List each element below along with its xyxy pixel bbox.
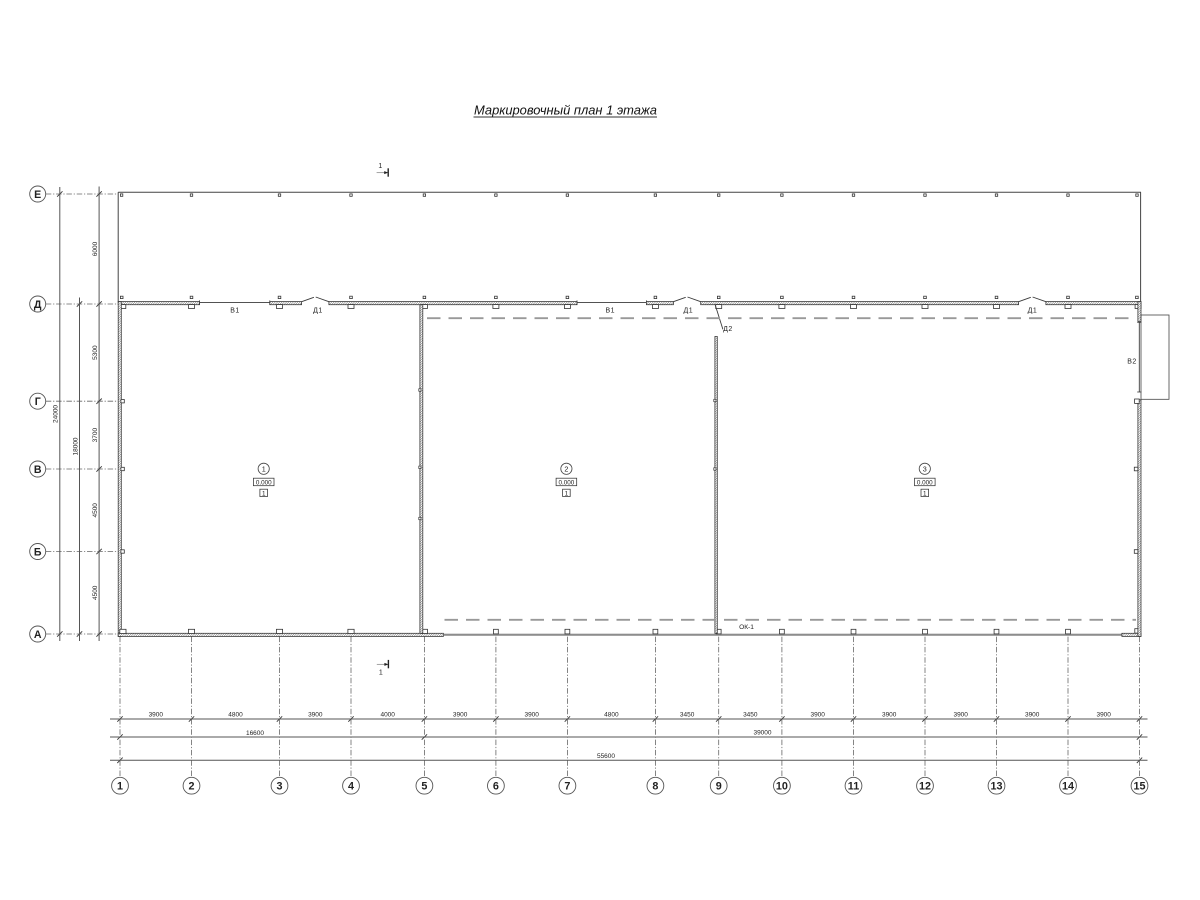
svg-text:1: 1: [565, 490, 569, 497]
svg-text:39000: 39000: [753, 730, 771, 737]
svg-text:Г: Г: [35, 396, 41, 408]
svg-text:11: 11: [848, 781, 859, 793]
svg-text:3450: 3450: [743, 712, 758, 719]
svg-text:13: 13: [990, 781, 1002, 793]
svg-text:18000: 18000: [73, 437, 80, 455]
svg-text:3900: 3900: [1025, 712, 1040, 719]
svg-text:16600: 16600: [246, 730, 264, 737]
svg-text:А: А: [34, 629, 42, 641]
svg-text:Б: Б: [34, 546, 42, 558]
svg-text:5300: 5300: [92, 345, 99, 360]
svg-text:55600: 55600: [597, 753, 615, 760]
svg-text:1: 1: [117, 781, 123, 793]
svg-text:10: 10: [776, 781, 788, 793]
svg-text:3900: 3900: [453, 712, 468, 719]
svg-text:24000: 24000: [53, 405, 60, 423]
svg-text:1: 1: [262, 464, 266, 473]
svg-text:3900: 3900: [810, 712, 825, 719]
svg-text:Д1: Д1: [313, 308, 323, 315]
svg-text:0.000: 0.000: [256, 479, 272, 486]
svg-text:Д1: Д1: [1028, 308, 1038, 315]
svg-text:Д1: Д1: [683, 308, 693, 315]
svg-text:2: 2: [564, 464, 568, 473]
svg-text:В1: В1: [230, 308, 240, 315]
svg-text:1: 1: [379, 670, 383, 677]
svg-text:Маркировочный план 1 этажа: Маркировочный план 1 этажа: [474, 103, 657, 118]
svg-text:1: 1: [923, 490, 927, 497]
svg-text:7: 7: [564, 781, 570, 793]
svg-text:1: 1: [262, 490, 266, 497]
svg-text:3900: 3900: [1096, 712, 1111, 719]
svg-text:3900: 3900: [308, 712, 323, 719]
svg-text:3900: 3900: [524, 712, 539, 719]
svg-text:8: 8: [652, 781, 658, 793]
svg-text:В: В: [34, 464, 42, 476]
svg-text:4500: 4500: [92, 503, 99, 518]
svg-text:3450: 3450: [680, 712, 695, 719]
svg-text:3: 3: [923, 464, 927, 473]
svg-text:4800: 4800: [228, 712, 243, 719]
svg-text:4: 4: [348, 781, 354, 793]
svg-text:ОК-1: ОК-1: [739, 624, 754, 631]
svg-text:В2: В2: [1127, 358, 1137, 365]
svg-text:Д2: Д2: [723, 326, 733, 333]
svg-text:В1: В1: [606, 308, 616, 315]
svg-text:15: 15: [1133, 781, 1145, 793]
svg-text:4000: 4000: [380, 712, 395, 719]
svg-text:0.000: 0.000: [559, 479, 575, 486]
svg-text:3900: 3900: [882, 712, 897, 719]
svg-text:5: 5: [421, 781, 427, 793]
svg-text:3900: 3900: [149, 712, 164, 719]
svg-text:6000: 6000: [92, 241, 99, 256]
svg-text:3: 3: [276, 781, 282, 793]
svg-text:3900: 3900: [953, 712, 968, 719]
svg-text:Е: Е: [34, 189, 41, 201]
svg-text:4800: 4800: [604, 712, 619, 719]
svg-text:14: 14: [1062, 781, 1074, 793]
svg-text:4500: 4500: [92, 585, 99, 600]
svg-text:2: 2: [188, 781, 194, 793]
svg-text:0.000: 0.000: [917, 479, 933, 486]
svg-text:3700: 3700: [92, 427, 99, 442]
svg-text:1: 1: [378, 163, 382, 170]
svg-text:12: 12: [919, 781, 931, 793]
svg-text:Д: Д: [34, 299, 42, 311]
svg-text:6: 6: [493, 781, 499, 793]
svg-text:9: 9: [716, 781, 722, 793]
